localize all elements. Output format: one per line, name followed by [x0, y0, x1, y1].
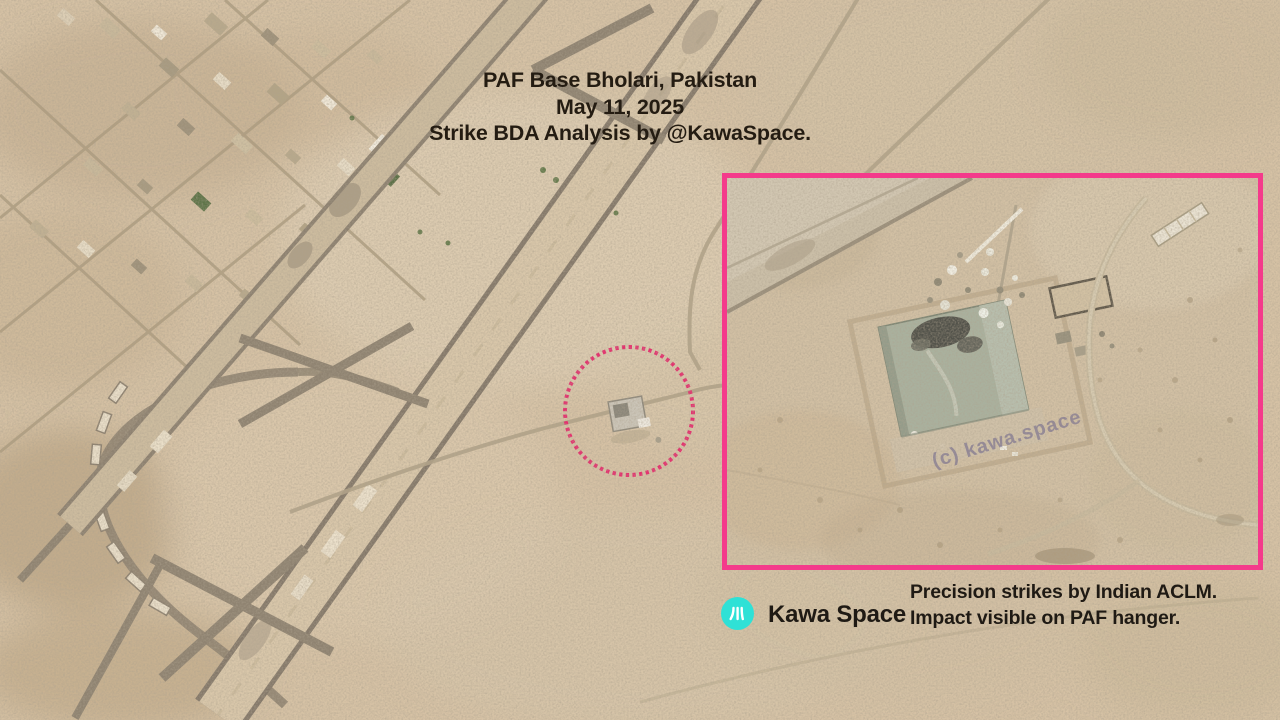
satellite-bda-graphic: PAF Base Bholari, Pakistan May 11, 2025 …: [0, 0, 1280, 720]
kawa-space-logo: [721, 597, 754, 630]
analysis-note-line2: Impact visible on PAF hanger.: [910, 605, 1217, 631]
river-strokes-icon: [721, 597, 754, 630]
brand-name: Kawa Space: [768, 601, 906, 629]
copyright-watermark: (c) kawa.space: [879, 390, 1134, 488]
title-block: PAF Base Bholari, Pakistan May 11, 2025 …: [320, 67, 920, 147]
title-date: May 11, 2025: [320, 94, 920, 121]
analysis-note: Precision strikes by Indian ACLM. Impact…: [910, 579, 1217, 631]
inset-frame: (c) kawa.space: [722, 173, 1263, 570]
title-credit: Strike BDA Analysis by @KawaSpace.: [320, 120, 920, 147]
analysis-note-line1: Precision strikes by Indian ACLM.: [910, 579, 1217, 605]
title-location: PAF Base Bholari, Pakistan: [320, 67, 920, 94]
